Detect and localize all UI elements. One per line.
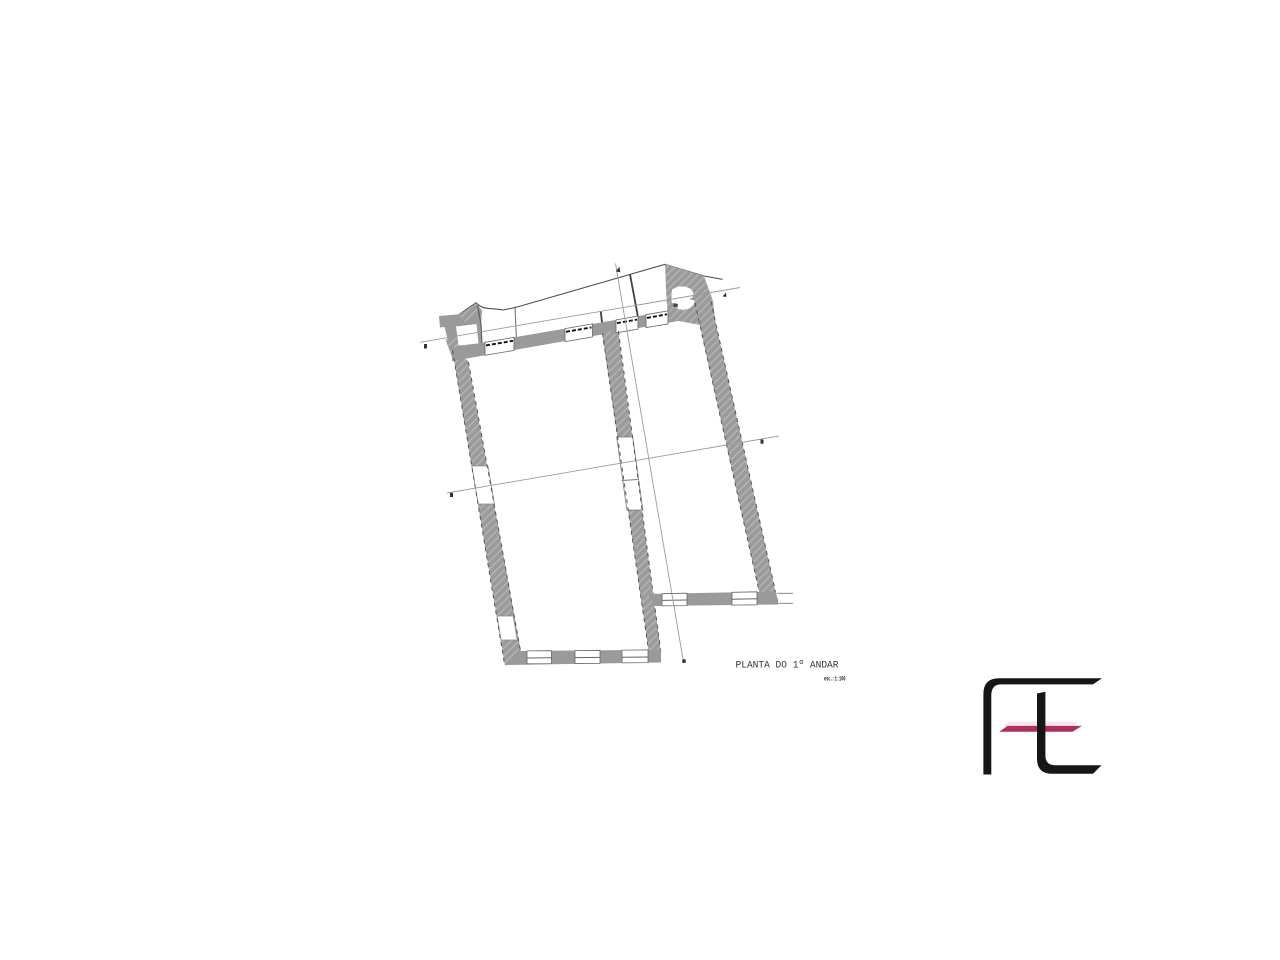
svg-text:esc.:1:100: esc.:1:100 (824, 676, 846, 683)
svg-text:PLANTA DO 1º ANDAR: PLANTA DO 1º ANDAR (736, 660, 840, 672)
